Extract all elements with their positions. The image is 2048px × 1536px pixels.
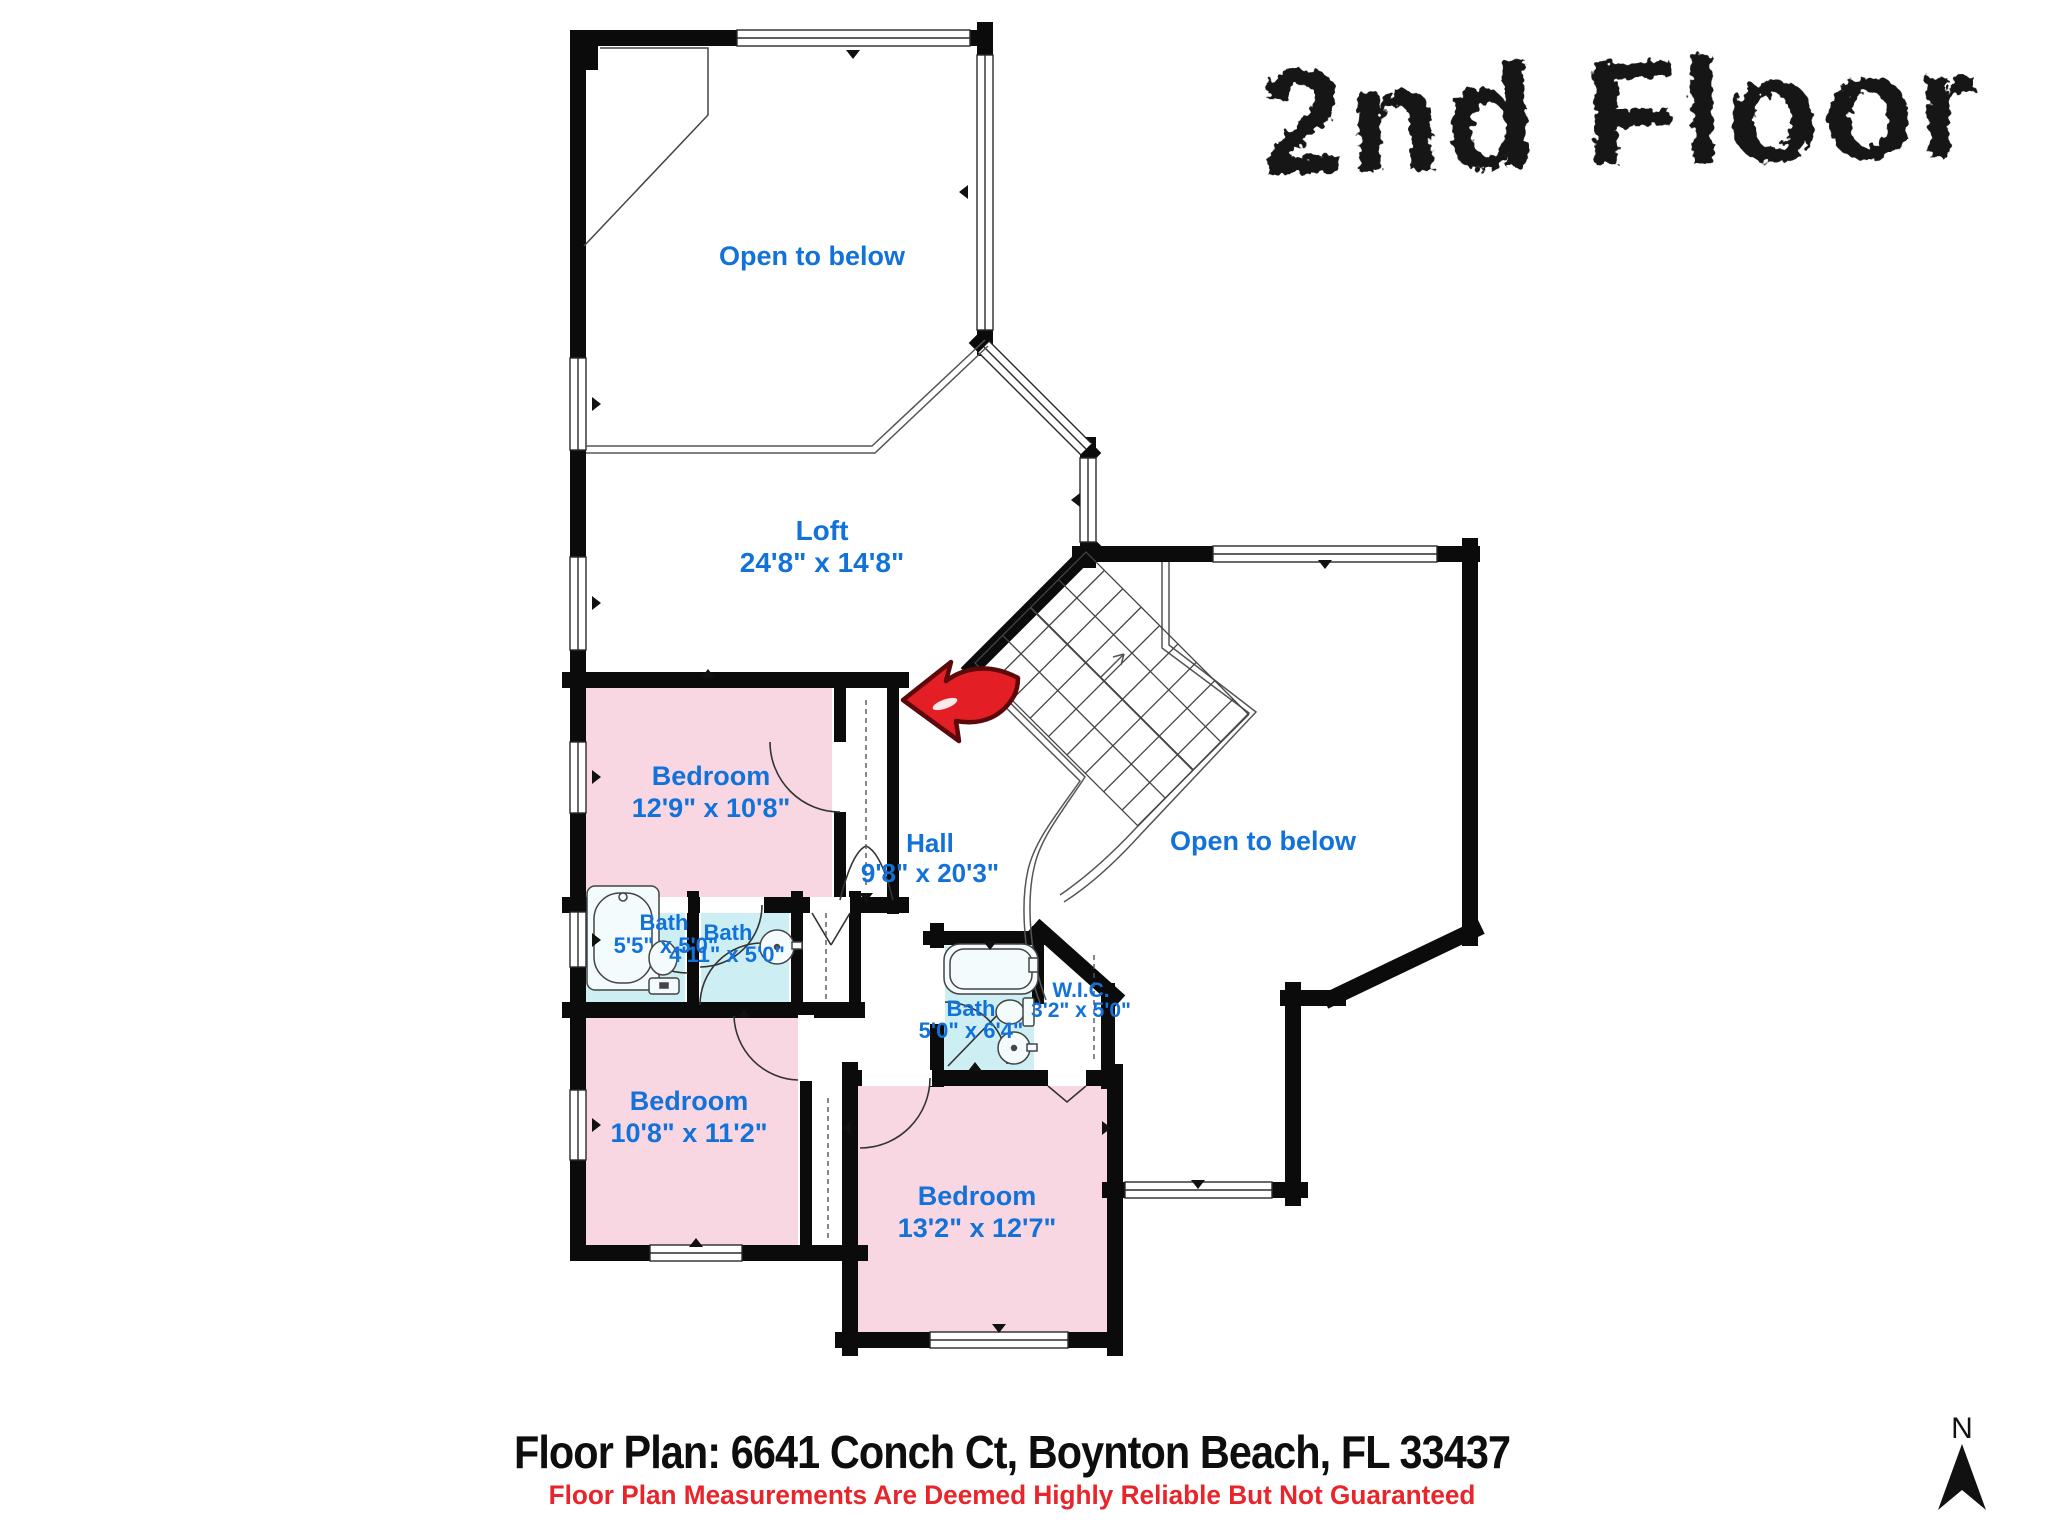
label-hall-dims: 9'8" x 20'3" (861, 858, 999, 888)
window (930, 1332, 1068, 1348)
north-arrow-icon: N (1938, 1412, 1986, 1510)
closet-door-lines (812, 913, 850, 945)
floor-plan-page: Open to below Loft 24'8" x 14'8" Bedroom… (0, 0, 2048, 1536)
address-title: Floor Plan: 6641 Conch Ct, Boynton Beach… (514, 1427, 1510, 1479)
label-loft: Loft (796, 515, 849, 546)
label-loft-dims: 24'8" x 14'8" (740, 547, 904, 578)
label-bedroom-2-dims: 10'8" x 11'2" (610, 1118, 767, 1148)
label-hall: Hall (906, 828, 954, 858)
window (737, 30, 970, 46)
label-wic-dims: 3'2" x 5'0" (1031, 999, 1131, 1022)
window (570, 1090, 586, 1160)
window (1213, 546, 1437, 562)
disclaimer-text: Floor Plan Measurements Are Deemed Highl… (549, 1480, 1476, 1510)
window (1080, 458, 1096, 542)
label-open-to-below-right: Open to below (1170, 826, 1357, 856)
window (979, 341, 1091, 455)
footer: Floor Plan: 6641 Conch Ct, Boynton Beach… (514, 1427, 1510, 1510)
window (570, 742, 586, 813)
window (570, 358, 586, 450)
window (977, 55, 993, 330)
window (570, 912, 586, 967)
bathtub-icon (944, 944, 1038, 994)
label-bath-2-dims: 4'11" x 5'0" (669, 942, 785, 967)
north-label: N (1951, 1412, 1973, 1445)
window (650, 1245, 742, 1261)
floor-plan-canvas: Open to below Loft 24'8" x 14'8" Bedroom… (0, 0, 2048, 1536)
label-bath-3-dims: 5'0" x 6'4" (919, 1018, 1024, 1043)
label-bedroom-2: Bedroom (630, 1086, 749, 1116)
ceiling-break-line (584, 48, 708, 246)
stair-direction-glyph (1100, 654, 1124, 678)
stairs-down-arrow-icon (903, 662, 1018, 741)
label-bedroom-1-dims: 12'9" x 10'8" (632, 793, 791, 823)
page-title: 2nd Floor (1259, 20, 1982, 207)
label-bedroom-3-dims: 13'2" x 12'7" (898, 1213, 1057, 1243)
window (570, 557, 586, 650)
label-bedroom-1: Bedroom (652, 761, 771, 791)
label-open-to-below-top: Open to below (719, 241, 906, 271)
label-bedroom-3: Bedroom (918, 1181, 1037, 1211)
label-bath-1: Bath (640, 910, 689, 935)
